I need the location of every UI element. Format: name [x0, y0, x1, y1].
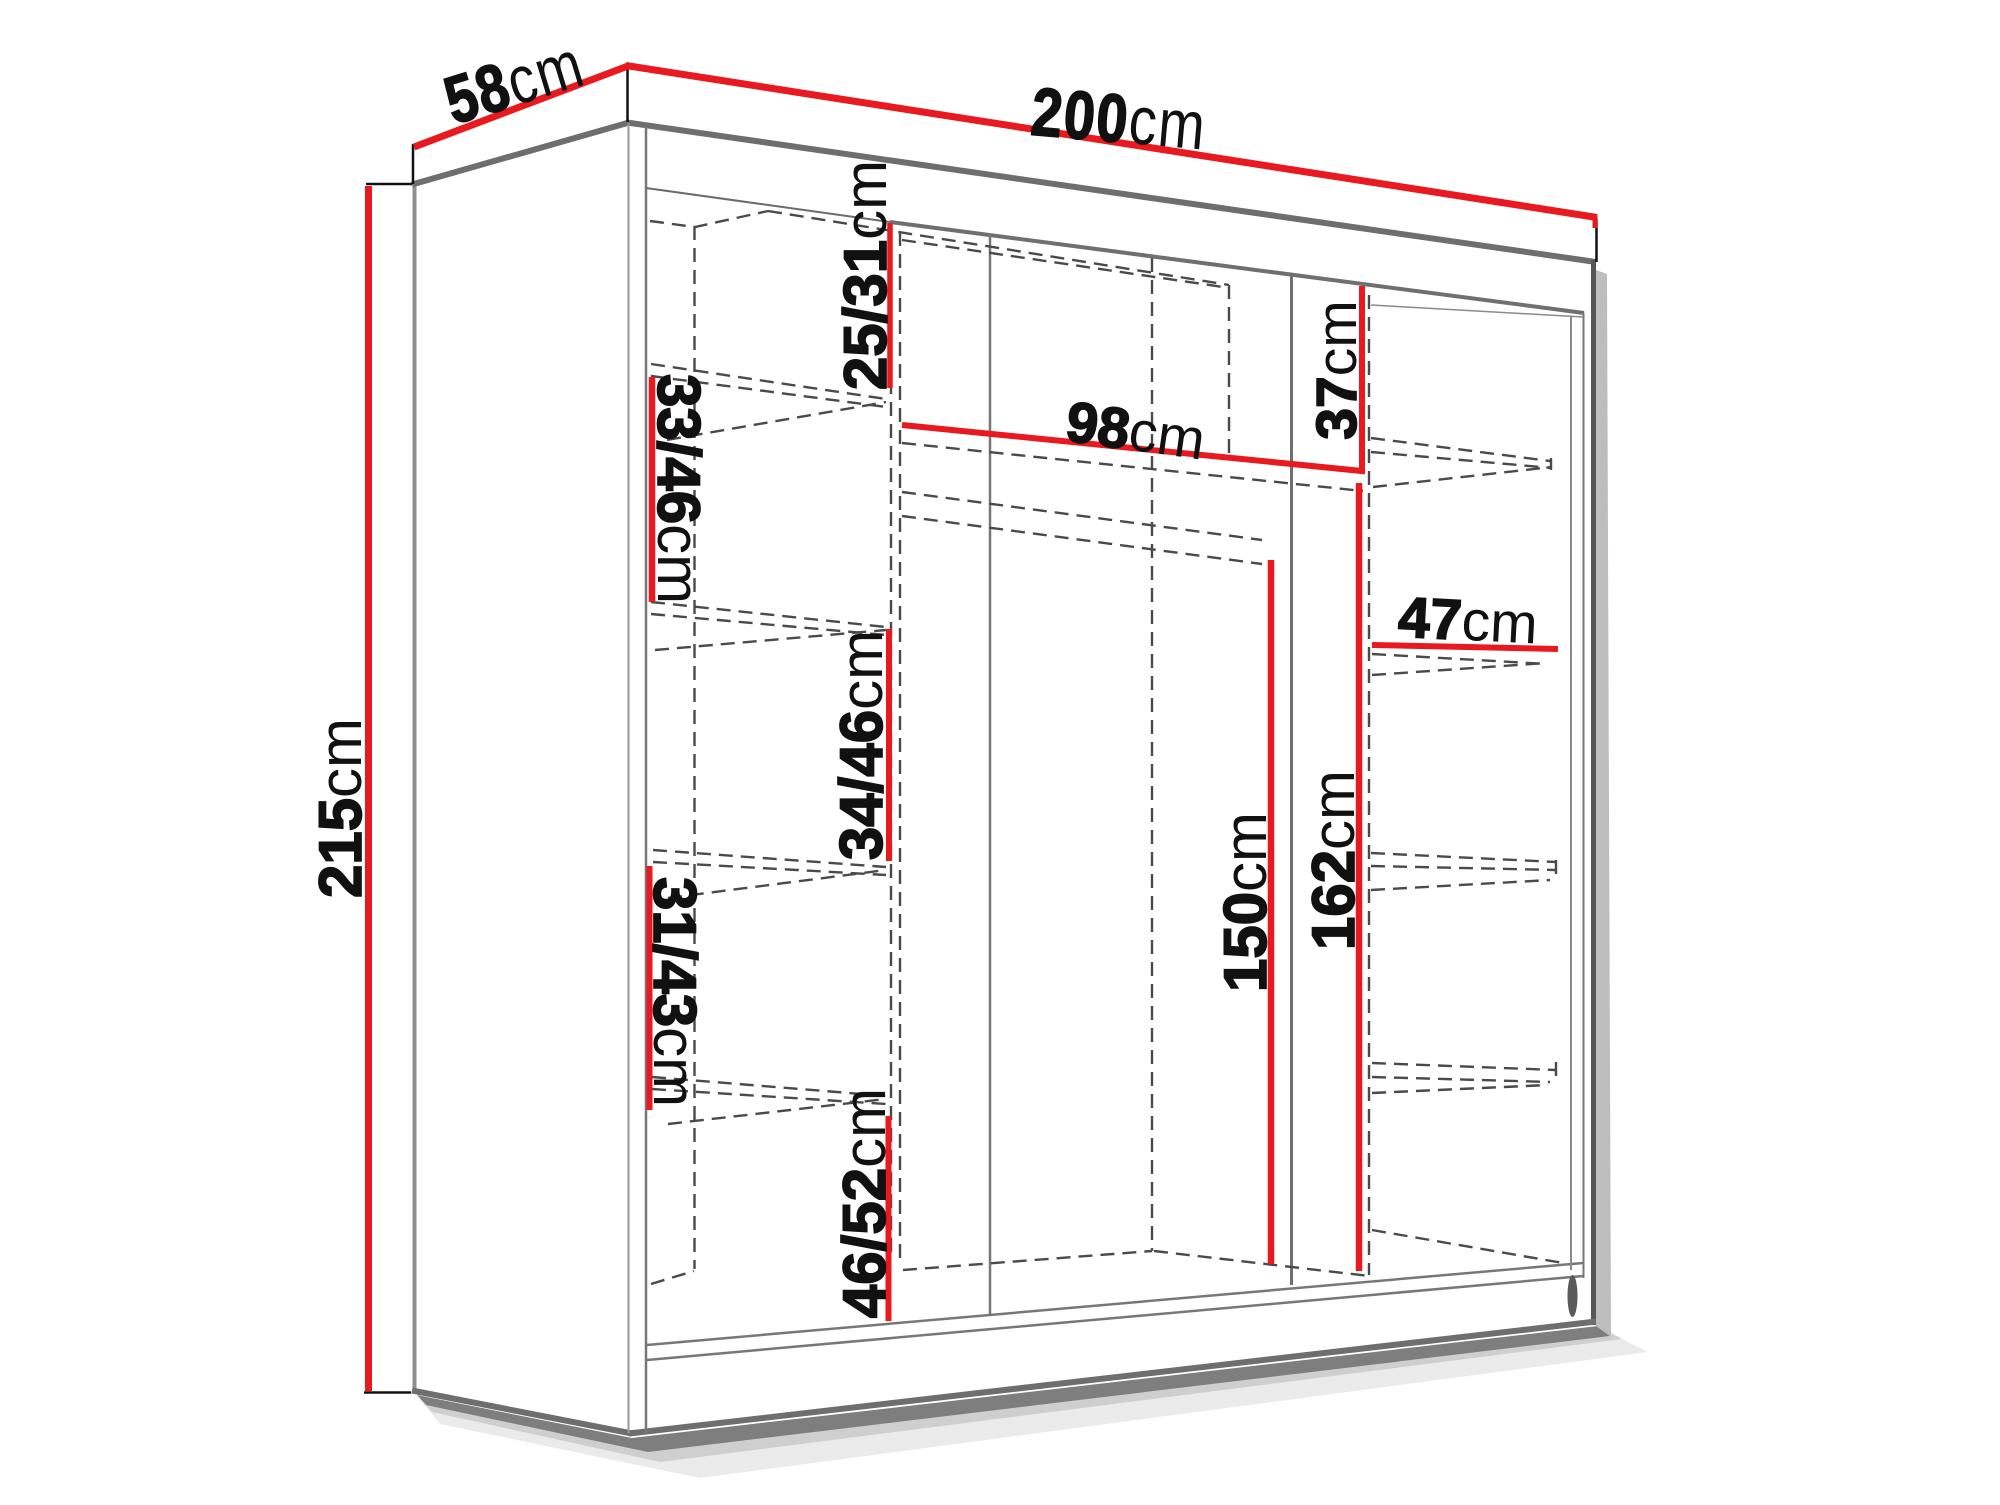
svg-text:37cm: 37cm	[1305, 300, 1369, 439]
svg-text:31/43cm: 31/43cm	[641, 877, 708, 1107]
svg-text:150cm: 150cm	[1212, 812, 1279, 992]
svg-text:34/46cm: 34/46cm	[828, 630, 895, 860]
svg-text:200cm: 200cm	[1028, 74, 1209, 164]
svg-text:33/46cm: 33/46cm	[645, 374, 712, 604]
svg-text:215cm: 215cm	[307, 718, 374, 898]
svg-text:47cm: 47cm	[1397, 585, 1540, 656]
svg-text:25/31cm: 25/31cm	[832, 160, 899, 390]
svg-text:162cm: 162cm	[1300, 770, 1367, 950]
svg-text:46/52cm: 46/52cm	[831, 1088, 898, 1318]
